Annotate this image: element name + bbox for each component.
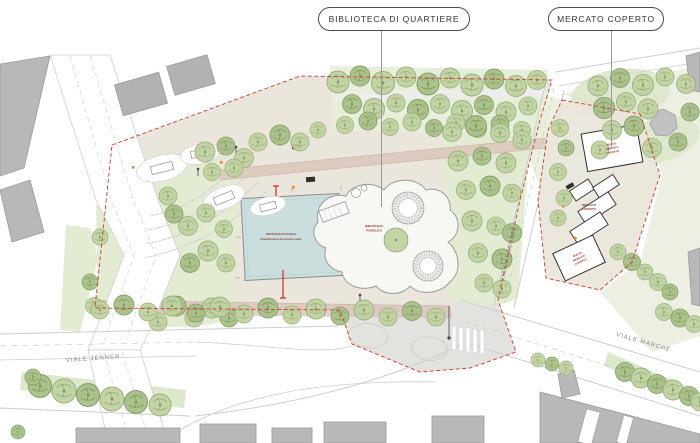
tree xyxy=(249,133,267,151)
tree xyxy=(427,308,445,326)
tree xyxy=(461,74,483,96)
tree xyxy=(165,205,183,223)
tree xyxy=(681,103,699,121)
tree xyxy=(125,391,148,414)
tree xyxy=(457,181,476,200)
tree xyxy=(513,131,531,149)
tree xyxy=(343,95,362,114)
tree xyxy=(610,244,626,260)
tree xyxy=(552,120,569,137)
tree xyxy=(139,303,157,321)
tree xyxy=(491,124,510,143)
tree xyxy=(159,187,177,205)
tree xyxy=(656,68,674,86)
tree xyxy=(354,300,374,320)
tree xyxy=(480,176,500,196)
tree xyxy=(198,241,218,261)
tree xyxy=(462,211,482,231)
tree xyxy=(493,280,511,298)
tree xyxy=(556,190,572,206)
tree xyxy=(588,76,608,96)
tree xyxy=(217,254,235,272)
tree xyxy=(77,384,100,407)
library-label-line1: BIBLIOTECA xyxy=(365,224,384,228)
tree xyxy=(603,121,622,140)
tree xyxy=(417,73,439,95)
tree xyxy=(550,210,566,226)
tree xyxy=(475,96,494,115)
tree xyxy=(496,153,516,173)
tree xyxy=(187,304,205,322)
callout-library: BIBLIOTECA DI QUARTIERE xyxy=(318,7,470,31)
callout-market-leader-line xyxy=(611,29,612,148)
tree xyxy=(426,120,443,137)
tree xyxy=(258,298,278,318)
tree xyxy=(475,274,493,292)
callout-market: MERCATO COPERTO xyxy=(548,7,664,31)
tree xyxy=(440,68,460,88)
tree xyxy=(283,306,301,324)
tree xyxy=(558,140,574,156)
tree xyxy=(387,94,405,112)
tree xyxy=(327,71,349,93)
pool-label-line1: SPECCHIO D'ACQUA xyxy=(266,232,297,236)
tree xyxy=(545,357,559,371)
tree xyxy=(443,123,462,142)
tree xyxy=(403,302,422,321)
tree xyxy=(11,425,25,439)
market-area-label-line2: COPERTO xyxy=(582,207,597,211)
tree xyxy=(503,184,521,202)
tree xyxy=(337,117,354,134)
tree xyxy=(91,301,109,319)
tree xyxy=(217,137,235,155)
callout-market-label: MERCATO COPERTO xyxy=(557,14,655,24)
tree xyxy=(611,69,630,88)
tree xyxy=(149,394,171,416)
tree xyxy=(204,164,221,181)
site-plan-drawing: VIALE JENNER VIA VALASSINA VIALE MARCHE … xyxy=(0,0,700,443)
tree xyxy=(448,151,468,171)
tree xyxy=(686,316,700,333)
tree xyxy=(473,147,491,165)
tree xyxy=(633,75,654,96)
tree xyxy=(506,76,527,97)
callout-library-label: BIBLIOTECA DI QUARTIERE xyxy=(329,14,460,24)
tree xyxy=(550,164,567,181)
tree xyxy=(466,116,487,137)
callout-library-leader-line xyxy=(381,29,382,207)
tree xyxy=(431,95,450,114)
tree xyxy=(195,142,215,162)
tree xyxy=(52,379,76,403)
tree xyxy=(197,204,215,222)
tree xyxy=(396,67,416,87)
tree xyxy=(469,244,488,263)
tree xyxy=(624,116,644,136)
tree xyxy=(225,159,243,177)
tree xyxy=(100,387,124,411)
tree xyxy=(531,353,545,367)
tree xyxy=(306,299,326,319)
tree xyxy=(92,229,108,245)
tree xyxy=(677,75,696,94)
tree xyxy=(235,305,253,323)
tree xyxy=(372,72,395,95)
tree xyxy=(382,119,399,136)
tree xyxy=(25,369,41,385)
tree xyxy=(82,274,98,290)
tree xyxy=(350,66,370,86)
tree xyxy=(291,133,309,151)
tree xyxy=(210,297,230,317)
tree xyxy=(403,113,421,131)
tree xyxy=(331,307,349,325)
tree xyxy=(617,93,636,112)
tree xyxy=(519,97,537,115)
tree xyxy=(559,361,573,375)
tree xyxy=(656,304,673,321)
tree xyxy=(379,308,397,326)
tree xyxy=(669,133,687,151)
tree xyxy=(662,284,678,300)
tree xyxy=(216,221,233,238)
tree xyxy=(359,112,377,130)
tree xyxy=(310,122,326,138)
tree xyxy=(643,139,662,158)
tree xyxy=(270,125,290,145)
library-label-line2: PUBBLICA xyxy=(366,229,382,233)
tree xyxy=(162,296,182,316)
tree xyxy=(114,295,134,315)
pool-label-line2: Riqualificazione del mercato rionale xyxy=(261,238,302,241)
tree xyxy=(181,254,200,273)
site-plan-page: VIALE JENNER VIA VALASSINA VIALE MARCHE … xyxy=(0,0,700,443)
